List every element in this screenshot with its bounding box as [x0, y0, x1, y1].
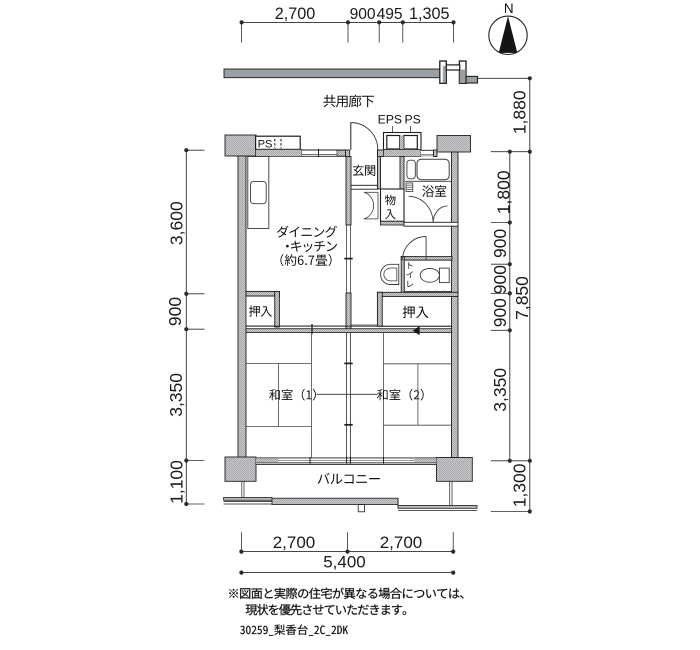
svg-text:495: 495 [377, 6, 403, 23]
svg-text:2,700: 2,700 [273, 533, 316, 552]
svg-text:900: 900 [490, 229, 510, 258]
svg-text:5,400: 5,400 [323, 552, 366, 571]
svg-text:2,700: 2,700 [275, 5, 316, 23]
svg-text:1,100: 1,100 [167, 460, 187, 504]
svg-text:EPS: EPS [378, 113, 402, 127]
svg-text:N: N [504, 1, 514, 16]
svg-text:3,600: 3,600 [167, 201, 187, 245]
svg-text:900: 900 [490, 298, 510, 327]
svg-text:1,305: 1,305 [409, 5, 450, 23]
svg-text:PS: PS [404, 113, 420, 127]
svg-text:7,850: 7,850 [512, 276, 532, 320]
svg-text:1,880: 1,880 [510, 90, 530, 134]
svg-text:PS: PS [258, 139, 273, 151]
svg-text:3,350: 3,350 [166, 373, 186, 417]
svg-text:3,350: 3,350 [490, 368, 510, 412]
svg-text:900: 900 [350, 6, 376, 23]
svg-text:900: 900 [490, 265, 510, 294]
svg-text:1,800: 1,800 [493, 170, 513, 214]
svg-text:900: 900 [165, 297, 185, 326]
svg-text:1,300: 1,300 [510, 463, 530, 507]
svg-text:2,700: 2,700 [380, 533, 423, 552]
